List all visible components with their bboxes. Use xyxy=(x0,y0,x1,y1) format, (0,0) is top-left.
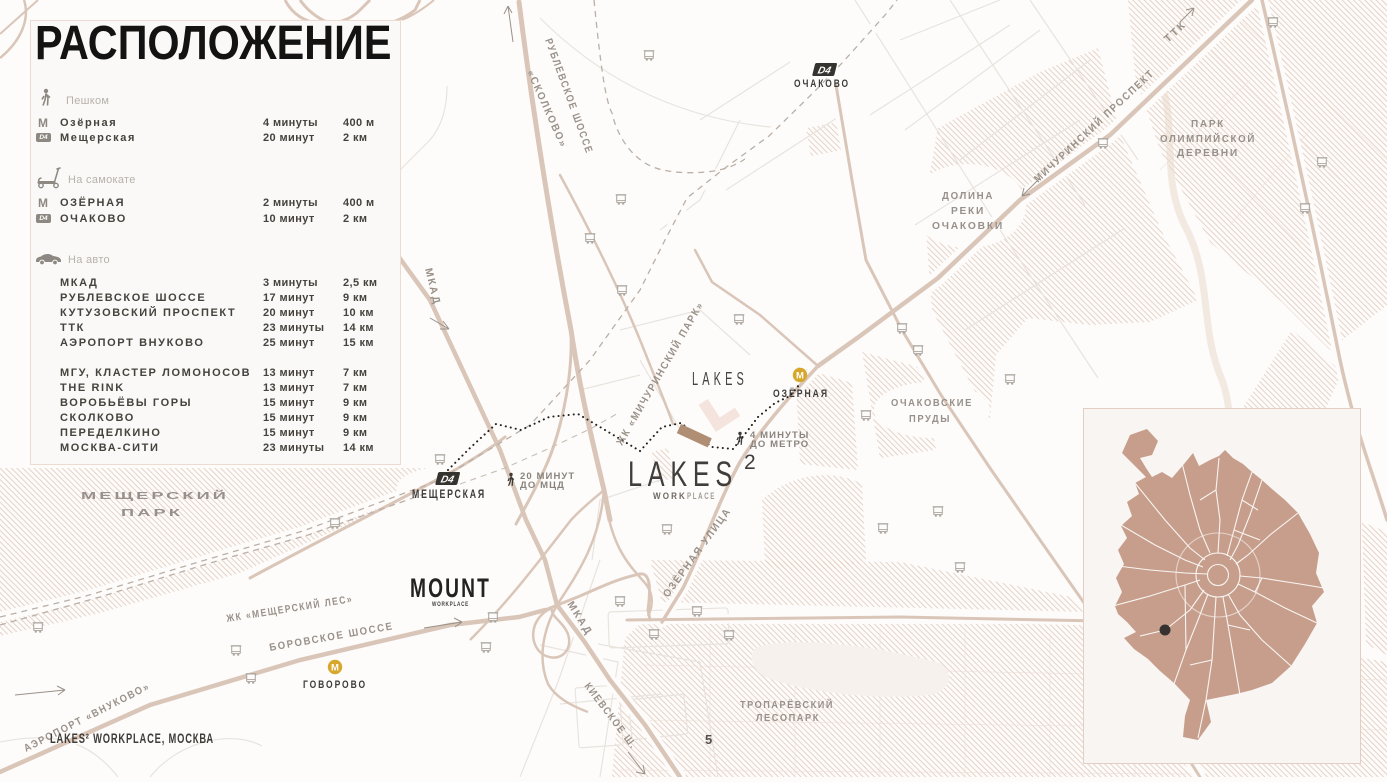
svg-text:ДЕРЕВНИ: ДЕРЕВНИ xyxy=(1177,147,1239,159)
svg-text:5: 5 xyxy=(705,732,712,747)
svg-text:2: 2 xyxy=(744,451,756,474)
svg-text:ГОВОРОВО: ГОВОРОВО xyxy=(303,679,367,691)
svg-text:ОЧАКОВО: ОЧАКОВО xyxy=(794,78,850,90)
svg-text:ДОЛИНА: ДОЛИНА xyxy=(942,190,994,202)
svg-text:ОЧАКОВСКИЕ: ОЧАКОВСКИЕ xyxy=(891,397,973,409)
svg-text:РЕКИ: РЕКИ xyxy=(951,205,985,217)
svg-text:МЕЩЕРСКАЯ: МЕЩЕРСКАЯ xyxy=(412,487,486,501)
svg-text:WORK: WORK xyxy=(653,491,687,502)
svg-text:ОЛИМПИЙСКОЙ: ОЛИМПИЙСКОЙ xyxy=(1160,132,1256,145)
svg-text:РУБЛЕВСКОЕ ШОССЕ: РУБЛЕВСКОЕ ШОССЕ xyxy=(542,37,595,156)
svg-text:PLACE: PLACE xyxy=(687,491,716,502)
svg-text:ДО МЕТРО: ДО МЕТРО xyxy=(750,439,809,450)
svg-text:MOUNT: MOUNT xyxy=(410,573,491,603)
svg-text:ОЧАКОВКИ: ОЧАКОВКИ xyxy=(932,220,1004,232)
svg-text:ПАРК: ПАРК xyxy=(1191,118,1225,130)
svg-text:WORKPLACE: WORKPLACE xyxy=(432,601,469,608)
svg-text:МЕЩЕРСКИЙ: МЕЩЕРСКИЙ xyxy=(81,489,229,502)
svg-text:ПАРК: ПАРК xyxy=(121,507,183,519)
svg-text:LAKES: LAKES xyxy=(628,455,738,494)
svg-text:ТРОПАРЁВСКИЙ: ТРОПАРЁВСКИЙ xyxy=(740,698,834,711)
svg-text:ОЗЁРНАЯ: ОЗЁРНАЯ xyxy=(773,387,829,400)
svg-text:ДО МЦД: ДО МЦД xyxy=(520,480,565,491)
svg-text:LAKES² WORKPLACE, МОСКВА: LAKES² WORKPLACE, МОСКВА xyxy=(50,731,214,746)
svg-text:ЛЕСОПАРК: ЛЕСОПАРК xyxy=(756,712,820,724)
svg-text:ЖК «МЕЩЕРСКИЙ ЛЕС»: ЖК «МЕЩЕРСКИЙ ЛЕС» xyxy=(225,592,354,625)
svg-text:ПРУДЫ: ПРУДЫ xyxy=(909,413,951,425)
svg-text:LAKES: LAKES xyxy=(692,368,748,389)
